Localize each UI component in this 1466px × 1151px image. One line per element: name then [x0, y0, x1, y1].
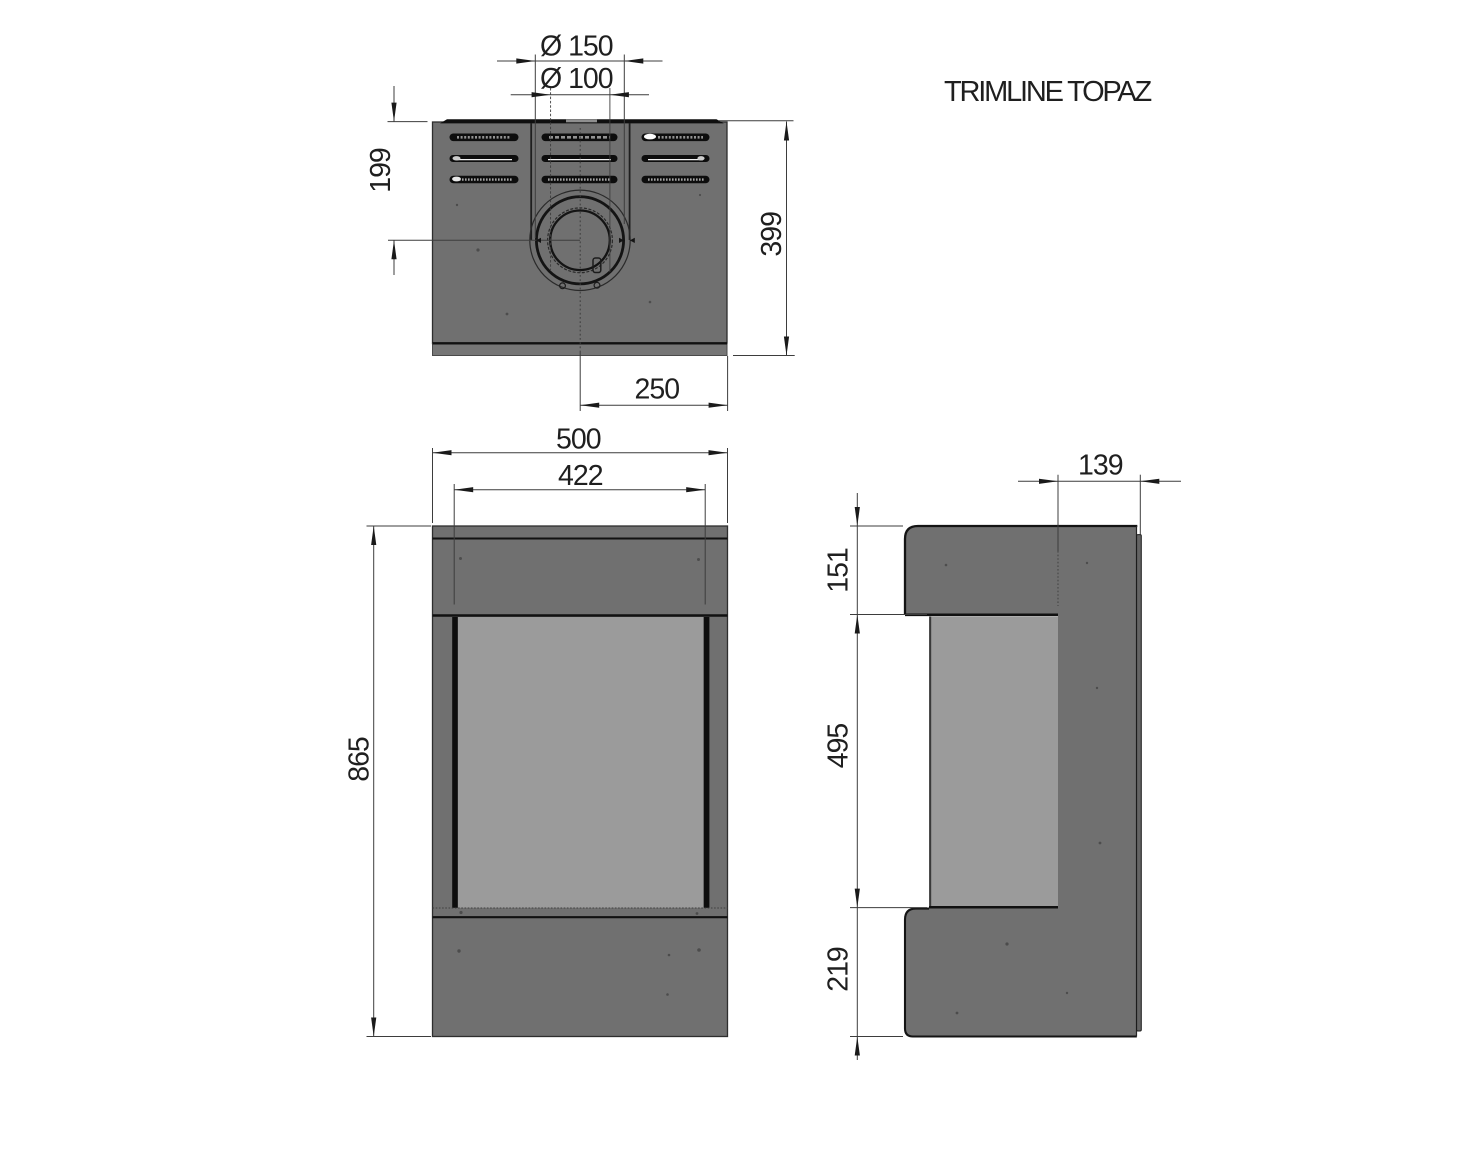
svg-text:Ø 150: Ø 150	[540, 31, 613, 63]
svg-text:865: 865	[344, 737, 376, 782]
svg-text:422: 422	[558, 460, 603, 492]
svg-text:250: 250	[635, 374, 680, 406]
svg-text:139: 139	[1078, 450, 1123, 482]
svg-text:500: 500	[556, 424, 601, 456]
svg-text:495: 495	[823, 724, 855, 769]
svg-text:151: 151	[823, 548, 855, 593]
svg-text:219: 219	[823, 947, 855, 992]
svg-text:199: 199	[365, 148, 397, 193]
svg-text:399: 399	[756, 212, 788, 257]
svg-text:TRIMLINE TOPAZ: TRIMLINE TOPAZ	[944, 76, 1152, 108]
